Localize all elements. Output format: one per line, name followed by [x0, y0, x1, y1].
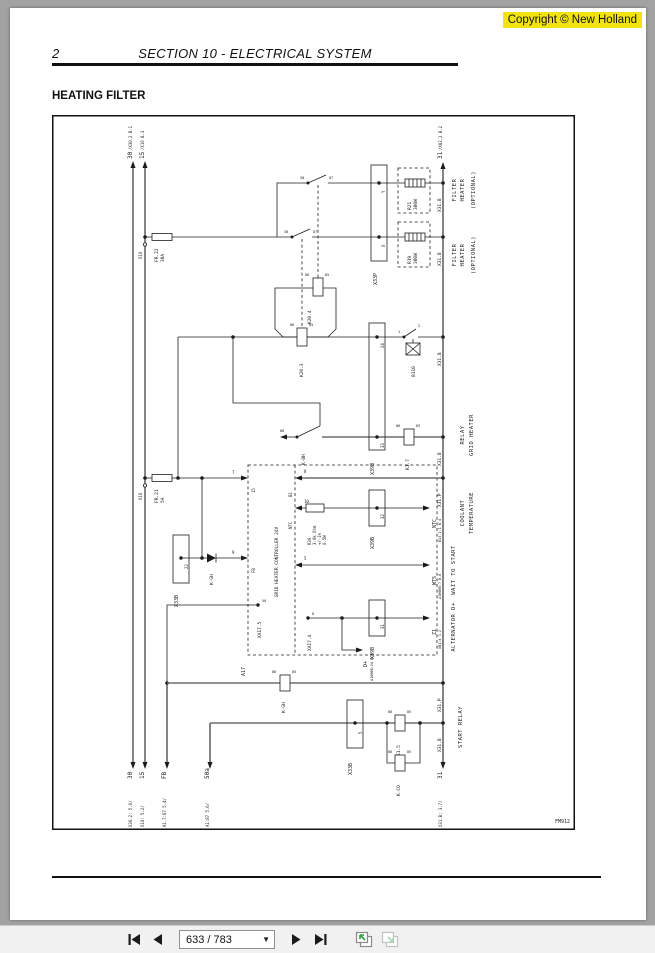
- previous-page-icon: [152, 933, 164, 946]
- document-page: Copyright © New Holland 2 SECTION 10 - E…: [10, 8, 646, 920]
- rail-50a-bottom-sig: 50a: [204, 768, 211, 779]
- contact-87-label: 87: [329, 176, 333, 180]
- xa17-sig-50: 50: [262, 599, 266, 603]
- fuse-fr22-rating: 30A: [160, 254, 166, 262]
- connector-x10-label-2: X10: [138, 492, 143, 500]
- controller-sig-fb: FB: [251, 568, 256, 573]
- rail-31-top-ref: /X82.2 B.2: [438, 125, 443, 150]
- rail-fb-bottom-ref: A1.7:87 5.4/: [162, 798, 167, 827]
- controller-pin-9: 9: [232, 550, 235, 555]
- rail-15-top-sig: 15: [139, 151, 146, 159]
- copyright-banner: Copyright © New Holland: [503, 12, 642, 28]
- last-page-icon: [313, 933, 328, 946]
- relay-k1-7-label: K1.7: [405, 459, 411, 470]
- label-coolant-temp-b: TEMPERATURE: [469, 492, 475, 534]
- label-wait-to-start: WAIT TO START: [451, 545, 457, 595]
- fuse-fr21-label: FR.21: [154, 489, 160, 503]
- label-filter-2a: FILTER: [452, 243, 458, 266]
- fuse-fr21-rating: 5A: [160, 497, 166, 503]
- resistor-r19-rating: 300W: [413, 253, 419, 264]
- page-dropdown-caret-icon[interactable]: ▼: [262, 935, 270, 944]
- controller-pin-8: 8: [304, 469, 307, 474]
- controller-sig-15: 15: [251, 488, 256, 493]
- x39b-pin-31: 31: [380, 624, 385, 629]
- rail-30-bottom-sig: 30: [127, 771, 134, 779]
- contact-k-bh-label: K-BH: [301, 454, 307, 465]
- component-b110-label: B110: [411, 366, 417, 377]
- x33p-pin-y: Y: [381, 190, 386, 193]
- figure-id: FM912: [555, 819, 570, 825]
- relay-coil-k-gh-label: K-GH: [281, 702, 287, 713]
- kco-pin-85: 85: [407, 750, 411, 754]
- first-page-icon: [127, 933, 142, 946]
- connector-x33p-label: X33P: [373, 273, 379, 285]
- section-title: SECTION 10 - ELECTRICAL SYSTEM: [52, 46, 458, 61]
- rail-tag-x31b-2: X31.B: [437, 252, 443, 266]
- rail-15-bottom-sig: 15: [139, 771, 146, 779]
- fuse-fr22-label: FR.22: [154, 248, 160, 262]
- wiring-diagram: 30 /X30.2 B.1 15 /X10 B.3 31 /X82.2 B.2 …: [52, 115, 575, 830]
- connector-xa17-4-label: XA17.4: [307, 634, 313, 651]
- resistor-r21-label: R21: [407, 202, 413, 210]
- label-filter-1b: HEATER: [460, 178, 466, 201]
- next-view-icon: [380, 931, 399, 948]
- controller-sig-b1: B1: [288, 492, 293, 497]
- k15-pin-86: 86: [388, 710, 392, 714]
- previous-page-button[interactable]: [146, 929, 170, 950]
- x39b-pin-33: 33: [380, 443, 385, 448]
- header-rule: [52, 63, 458, 66]
- controller-label: GRID HEATER CONTROLLER 24V: [274, 526, 280, 597]
- rail-50a-bottom-ref: A1:87 5.6/: [205, 802, 210, 827]
- label-filter-2b: HEATER: [460, 243, 466, 266]
- label-filter-1c: (OPTIONAL): [471, 171, 477, 209]
- relay-coil-k-co-label: K-CO: [396, 785, 402, 796]
- relay-k20-4-label: K20.4: [307, 310, 313, 324]
- controller-pin-5: 5: [304, 556, 307, 561]
- rail-tag-x31b-1: X31.B: [437, 198, 443, 212]
- rail-tag-x31p-1: X31.P: [437, 493, 443, 507]
- x39b-pin-24: 24: [380, 343, 385, 348]
- page-number-value: 633 / 783: [186, 934, 232, 946]
- previous-view-icon: [354, 931, 373, 948]
- rail-15-bottom-ref: X10: 5.2/: [140, 805, 145, 827]
- next-page-button[interactable]: [284, 929, 308, 950]
- rail-tag-x31p-2: X31.P: [437, 698, 443, 712]
- contact-30-label-2: 30: [284, 230, 288, 234]
- label-coolant-temp-a: COOLANT: [460, 499, 466, 526]
- resistor-r19-label: R19: [407, 256, 413, 264]
- k203-pin-86: 86: [290, 323, 294, 327]
- x33p-pin-x: X: [381, 244, 386, 247]
- controller-pin-10: 10: [304, 499, 309, 504]
- k17-pin-86: 86: [396, 424, 400, 428]
- page-number-input[interactable]: 633 / 783 ▼: [179, 930, 275, 949]
- rail-tag-x31b-4: X31.B: [437, 452, 443, 466]
- screen: { "viewer": { "copyright": "Copyright © …: [0, 0, 655, 952]
- rail-31-bottom-ref: X31.B: 3.7/: [438, 800, 443, 827]
- ref-z1-address: XB1:4 3.2: [438, 630, 442, 649]
- xa17-sig-d: D: [312, 612, 314, 616]
- rail-15-top-ref: /X10 B.3: [140, 130, 145, 150]
- footer-rule: [52, 876, 601, 878]
- label-filter-1a: FILTER: [452, 178, 458, 201]
- rail-30-top-sig: 30: [127, 151, 134, 159]
- b110-pin-1: 1: [398, 330, 400, 334]
- relay-k1-5-label: K1.5: [396, 745, 402, 756]
- section-labels: FILTER HEATER (OPTIONAL) FILTER HEATER (…: [451, 171, 570, 825]
- diagram-border: [53, 116, 575, 830]
- rail-31-bottom-sig: 31: [437, 771, 444, 779]
- controller-pin-7: 7: [232, 470, 235, 475]
- x39b-pin-32: 32: [380, 514, 385, 519]
- connector-xa17-5-label: XA17.5: [257, 621, 263, 638]
- grid-heater-controller: GRID HEATER CONTROLLER 24V A17 7 15 X10 …: [138, 465, 445, 683]
- label-relay-grid-heater-b: GRID HEATER: [469, 414, 475, 456]
- diode-k-gh-label: K-GH: [209, 574, 215, 585]
- k203-pin-85: 85: [309, 323, 313, 327]
- b110-pin-2: 2: [418, 324, 420, 328]
- relay-k20-3-label: K20.3: [299, 363, 305, 377]
- resistor-r21-rating: 300W: [413, 199, 419, 210]
- contact-87-label-2: 87: [313, 230, 317, 234]
- x33b-pin-5: 5: [358, 731, 363, 734]
- k17-pin-85: 85: [416, 424, 420, 428]
- connector-x33b-label-2: X33B: [348, 763, 354, 775]
- contact-30-label: 30: [300, 176, 304, 180]
- k204-pin-85: 85: [325, 273, 329, 277]
- resistor-r30-power: 0.5W: [322, 535, 327, 545]
- ref-wts-address: A1000B:7 B.8: [438, 574, 442, 599]
- connector-x10-label: X10: [138, 251, 143, 259]
- rail-30-top-ref: /X30.2 B.1: [128, 125, 133, 150]
- label-start-relay: START RELAY: [458, 706, 464, 748]
- ref-d-plus-address: A1000B:24 B.5: [370, 654, 374, 681]
- previous-view-button[interactable]: [350, 929, 376, 950]
- next-page-icon: [290, 933, 302, 946]
- label-relay-grid-heater-a: RELAY: [460, 425, 466, 444]
- x33b-pin-22: 22: [184, 564, 189, 569]
- ref-d-plus: D+: [363, 661, 369, 667]
- label-alternator-d-plus: ALTERNATOR D+: [451, 602, 457, 652]
- controller-sig-ntc: NTC: [288, 521, 293, 529]
- kbh-pin-86: 86: [280, 429, 284, 433]
- last-page-button[interactable]: [308, 929, 332, 950]
- rail-31-top-sig: 31: [437, 151, 444, 159]
- ref-ntc-address: B13.1:1 B.4: [438, 519, 442, 542]
- grid-heater-relays: 86 85 K20.4 86 85 K20.3 1 2 B110 X31.B: [178, 273, 445, 478]
- next-view-button[interactable]: [376, 929, 402, 950]
- pdf-toolbar: 633 / 783 ▼: [0, 925, 655, 953]
- connector-x39b-label-2: X39B: [370, 537, 376, 549]
- rail-tag-x31b-5: X31.B: [437, 738, 443, 752]
- toolbar-controls: 633 / 783 ▼: [122, 928, 402, 951]
- k204-pin-86: 86: [305, 273, 309, 277]
- label-filter-2c: (OPTIONAL): [471, 236, 477, 274]
- k15-pin-85: 85: [407, 710, 411, 714]
- rail-fb-bottom-sig: FB: [161, 771, 168, 779]
- rail-30-bottom-ref: X30.2: 5.0/: [128, 800, 133, 827]
- rail-tag-x31b-3: X31.B: [437, 352, 443, 366]
- controller-a17-tag: A17: [241, 667, 247, 676]
- first-page-button[interactable]: [122, 929, 146, 950]
- filter-heater-circuit: 30 87 30 87 X10 FR.22 30A Y X X33P: [138, 165, 445, 328]
- kco-pin-86: 86: [388, 750, 392, 754]
- kgh-pin-86: 86: [272, 670, 276, 674]
- kgh-pin-85: 85: [292, 670, 296, 674]
- page-heading: HEATING FILTER: [52, 90, 145, 102]
